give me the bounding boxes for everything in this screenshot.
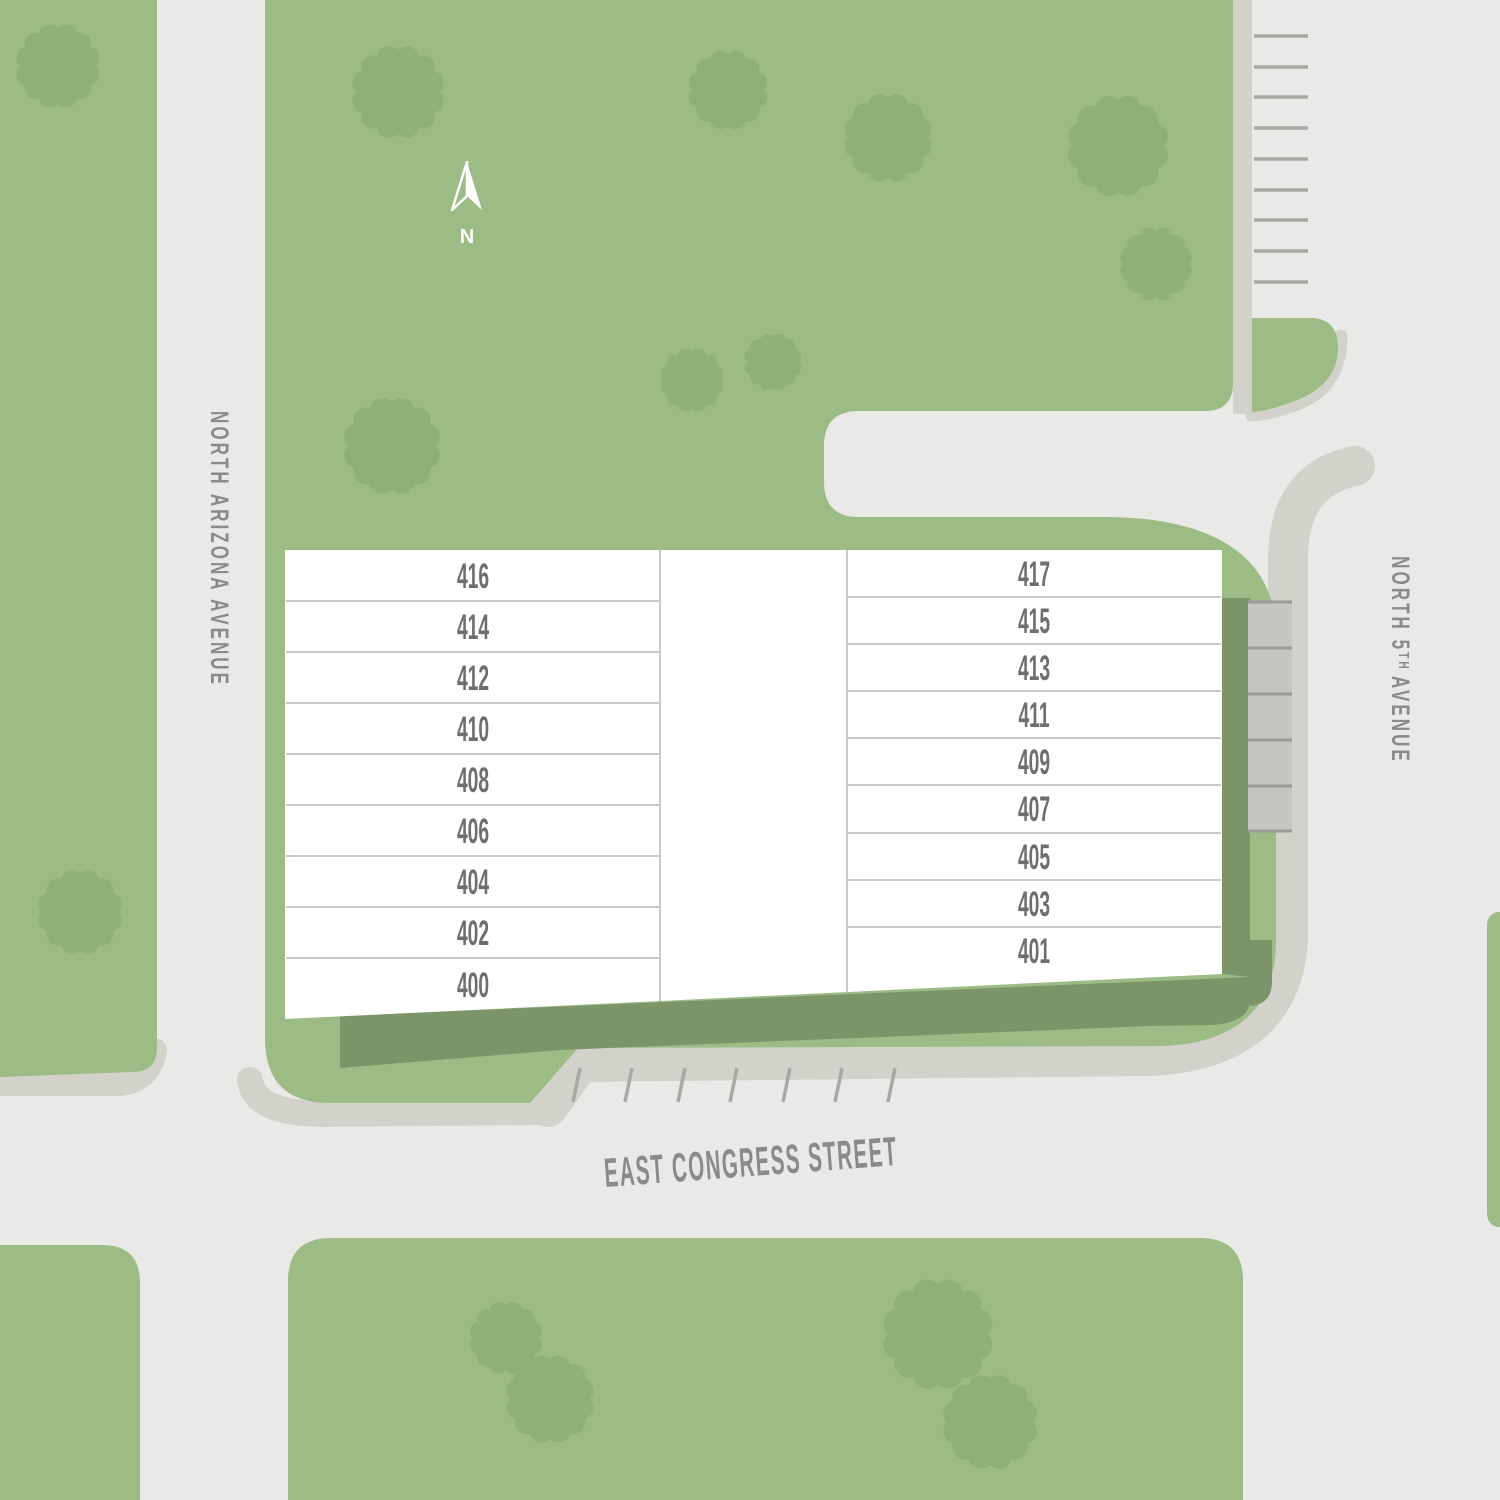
street-label-part: AVENUE bbox=[1386, 676, 1414, 764]
unit-label: 414 bbox=[457, 607, 489, 647]
street-label-north-arizona: NORTH ARIZONA AVENUE bbox=[205, 411, 233, 687]
unit-label: 406 bbox=[457, 811, 489, 851]
street-label-superscript: TH bbox=[1395, 652, 1413, 672]
terrace-band-east bbox=[1222, 598, 1250, 977]
unit-label: 410 bbox=[457, 709, 489, 749]
grass-block-south bbox=[288, 1238, 1243, 1500]
unit-label: 402 bbox=[457, 913, 489, 953]
parking-strip-surface bbox=[1248, 602, 1292, 831]
tree-icon bbox=[943, 1375, 1036, 1468]
unit-labels-east: 417 415 413 411 409 407 405 403 401 bbox=[1018, 554, 1050, 971]
unit-label: 400 bbox=[457, 965, 489, 1005]
parking-strip-east bbox=[1248, 602, 1292, 831]
tree-icon bbox=[745, 334, 801, 390]
grass-sliver-east bbox=[1487, 912, 1500, 1227]
grass-block-southwest bbox=[0, 1245, 140, 1500]
tree-icon bbox=[1068, 96, 1168, 196]
tree-icon bbox=[884, 1280, 993, 1389]
unit-label: 412 bbox=[457, 658, 489, 698]
tree-icon bbox=[1120, 228, 1192, 300]
site-plan-page: 416 414 412 410 408 406 404 402 400 417 … bbox=[0, 0, 1500, 1500]
sidewalk-north5th bbox=[1233, 0, 1252, 414]
tree-icon bbox=[344, 398, 440, 494]
unit-label: 417 bbox=[1018, 554, 1050, 594]
unit-label: 403 bbox=[1018, 884, 1050, 924]
tree-icon bbox=[17, 25, 100, 108]
unit-labels-west: 416 414 412 410 408 406 404 402 400 bbox=[457, 556, 489, 1005]
unit-label: 401 bbox=[1018, 931, 1050, 971]
unit-label: 416 bbox=[457, 556, 489, 596]
unit-label: 415 bbox=[1018, 601, 1050, 641]
building: 416 414 412 410 408 406 404 402 400 417 … bbox=[285, 550, 1222, 1019]
site-plan-map: 416 414 412 410 408 406 404 402 400 417 … bbox=[0, 0, 1500, 1500]
unit-label: 409 bbox=[1018, 742, 1050, 782]
unit-label: 408 bbox=[457, 760, 489, 800]
tree-icon bbox=[507, 1356, 594, 1443]
unit-label: 404 bbox=[457, 862, 489, 902]
compass-north-label: N bbox=[460, 226, 474, 248]
tree-icon bbox=[39, 871, 122, 954]
unit-label: 413 bbox=[1018, 648, 1050, 688]
unit-label: 407 bbox=[1018, 789, 1050, 829]
unit-label: 405 bbox=[1018, 837, 1050, 877]
unit-label: 411 bbox=[1018, 695, 1049, 735]
tree-icon bbox=[845, 95, 932, 182]
tree-icon bbox=[352, 46, 443, 137]
tree-icon bbox=[689, 51, 767, 129]
tree-icon bbox=[660, 348, 723, 411]
street-label-part: NORTH 5 bbox=[1386, 556, 1414, 652]
